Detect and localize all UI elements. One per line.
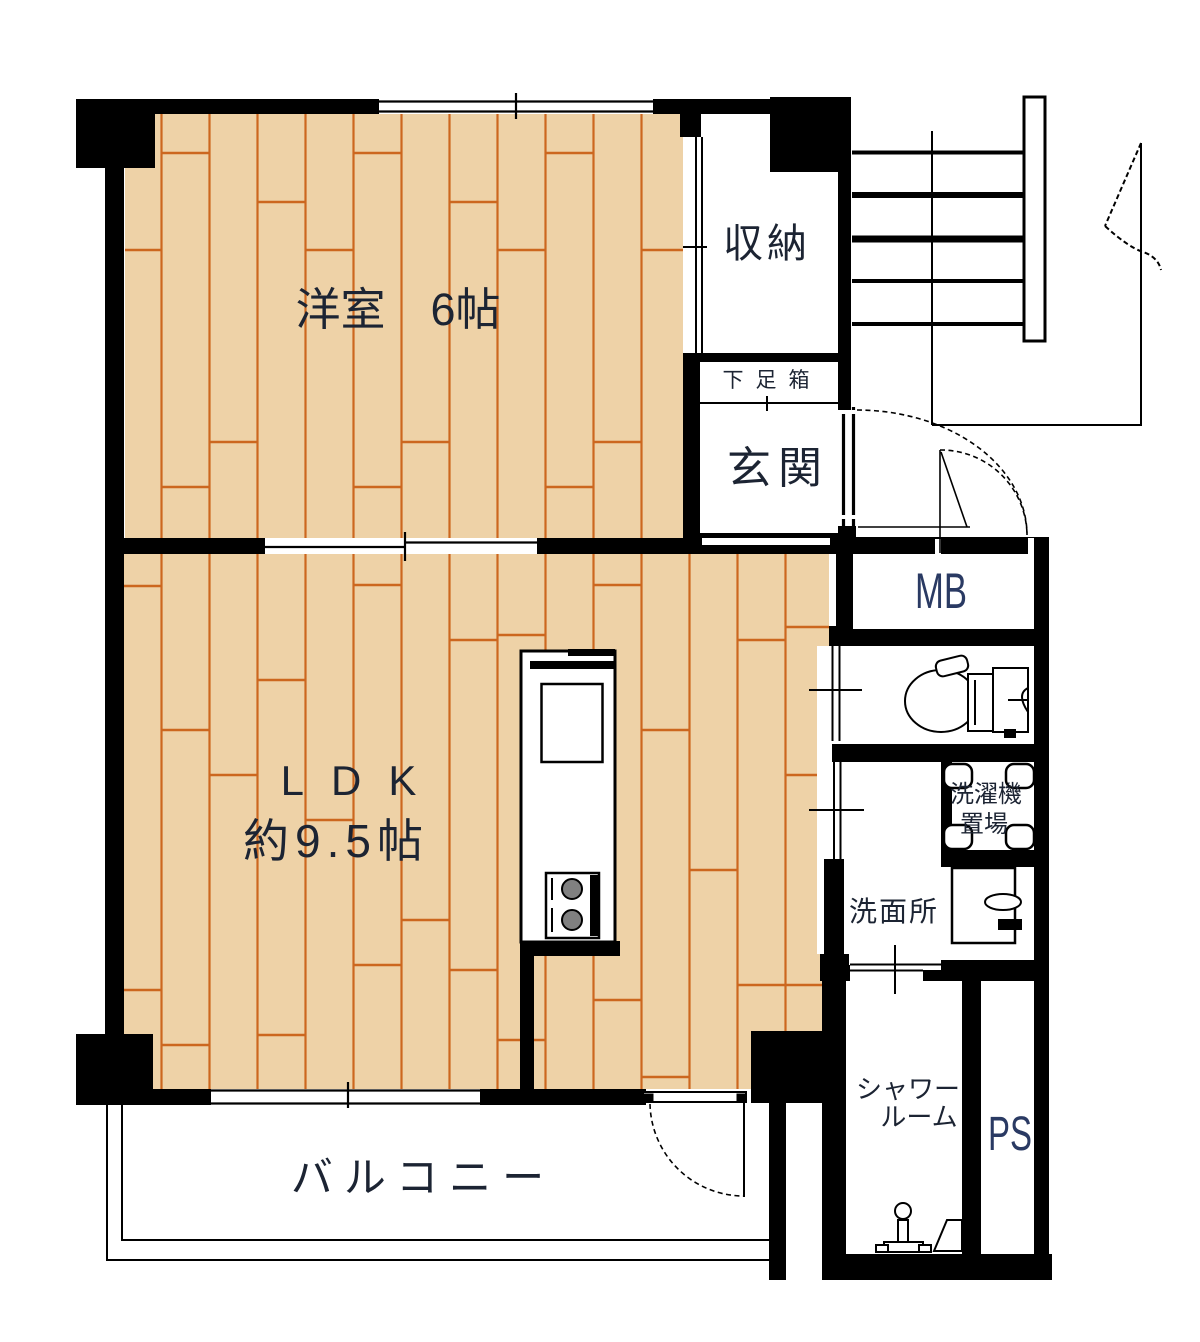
svg-text:約9.5帖: 約9.5帖 [243, 815, 429, 867]
svg-text:LDK: LDK [281, 757, 444, 804]
svg-text:洗濯機: 洗濯機 [950, 781, 1022, 808]
svg-text:下足箱: 下足箱 [723, 369, 822, 392]
svg-text:ルーム: ルーム [880, 1102, 957, 1132]
svg-text:置場: 置場 [960, 811, 1008, 838]
svg-text:バルコニー: バルコニー [291, 1154, 555, 1201]
svg-text:MB: MB [915, 563, 967, 619]
svg-text:シャワー: シャワー [856, 1074, 960, 1104]
svg-text:洋室 6帖: 洋室 6帖 [295, 284, 500, 335]
svg-text:PS: PS [988, 1108, 1032, 1161]
svg-text:洗面所: 洗面所 [849, 896, 939, 927]
svg-text:玄関: 玄関 [727, 444, 829, 493]
svg-text:収納: 収納 [723, 222, 811, 266]
